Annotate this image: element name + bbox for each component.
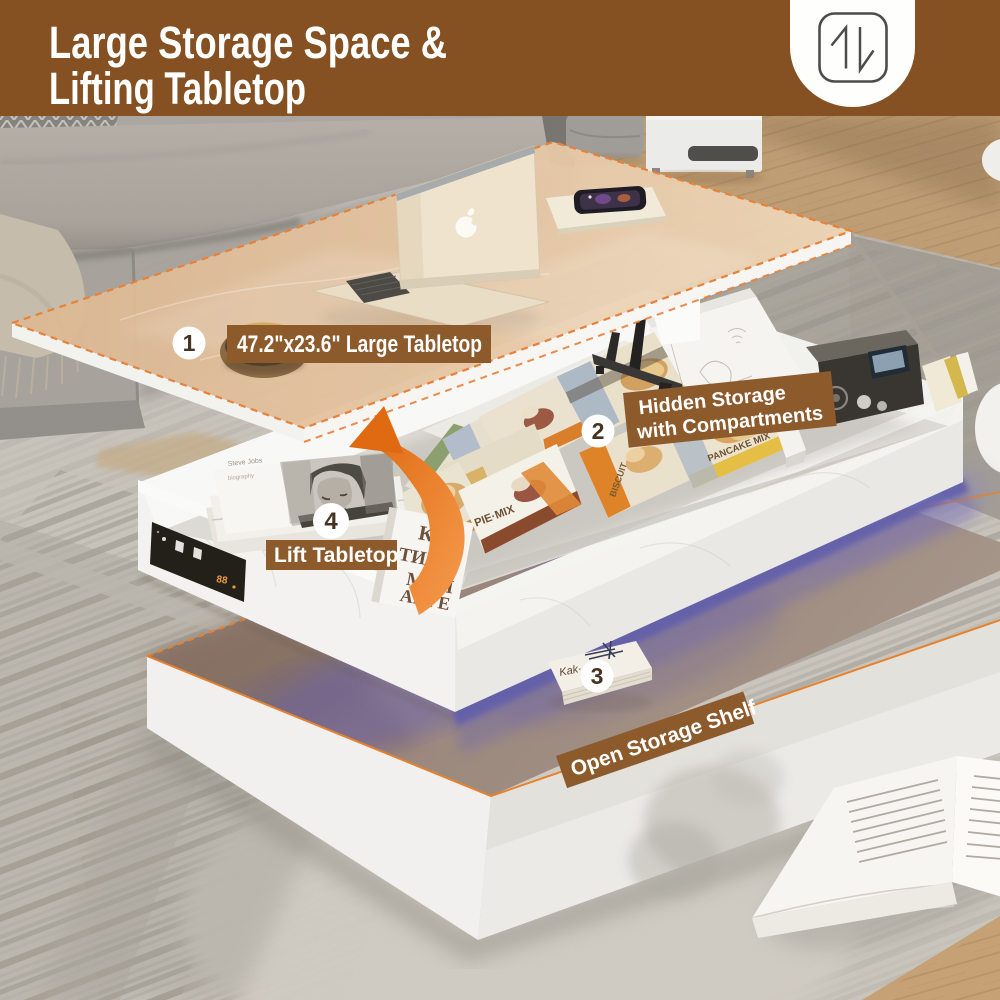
svg-text:47.2"x23.6" Large Tabletop: 47.2"x23.6" Large Tabletop — [237, 331, 482, 358]
svg-text:Large Storage Space &: Large Storage Space & — [49, 17, 447, 68]
svg-text:Lifting Tabletop: Lifting Tabletop — [49, 63, 306, 114]
svg-text:Lift Tabletop: Lift Tabletop — [274, 544, 398, 567]
svg-text:88: 88 — [216, 574, 229, 587]
svg-text:3: 3 — [591, 663, 604, 689]
svg-text:2: 2 — [592, 418, 605, 444]
svg-text:1: 1 — [183, 330, 196, 356]
svg-text:4: 4 — [324, 508, 338, 535]
